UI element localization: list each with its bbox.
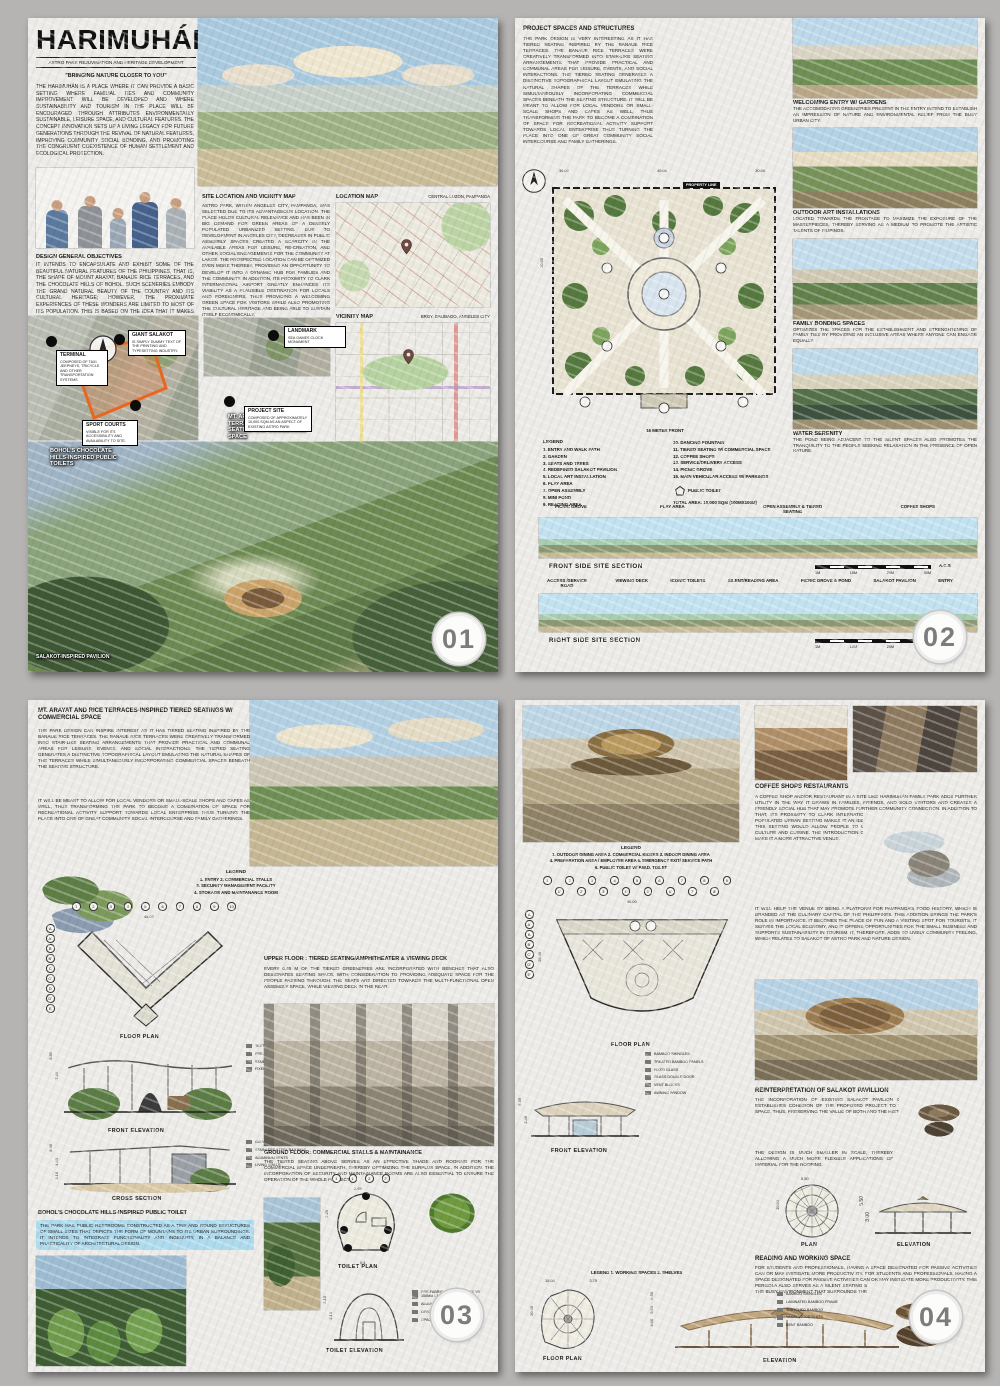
vicinity-map-value: BRGY. BALIBAGO, ANGELES CITY bbox=[421, 314, 490, 320]
dimension-label: 30.00 bbox=[755, 168, 765, 173]
dimension-label: 2.45 bbox=[523, 1116, 528, 1124]
legend-title: LEGEND bbox=[523, 846, 739, 851]
toilet-heading: BOHOL'S CHOCOLATE HILLS-INSPIRED PUBLIC … bbox=[38, 1210, 187, 1216]
grid-bubble: 1 bbox=[543, 876, 552, 885]
scale-bar bbox=[815, 565, 931, 569]
dimension-label: 5.50 bbox=[859, 1196, 865, 1206]
tiered-seating-render-image bbox=[250, 700, 498, 866]
dimension-label: 6.50 bbox=[649, 1292, 654, 1300]
pathway-photo bbox=[264, 1198, 320, 1310]
dimension-label: 8.90 bbox=[48, 1052, 53, 1060]
legend-item: 15. MAIN VEHICULAR ACCESS W/ PARKINGS bbox=[673, 474, 793, 481]
scale-labels: 1M10M20M30M bbox=[815, 571, 931, 575]
grid-bubble: C' bbox=[46, 974, 55, 983]
toilet-paragraph: THE PARK HAS PUBLIC RESTROOMS CONSTRUCTE… bbox=[36, 1220, 254, 1250]
site-heading: SITE LOCATION AND VICINITY MAP bbox=[202, 194, 296, 200]
grid-bubble: 2' bbox=[382, 1174, 391, 1183]
floor-plan-label: FLOOR PLAN bbox=[120, 1034, 159, 1040]
legend-item: 14. PICNIC GROVE bbox=[673, 467, 793, 474]
grid-bubble: 8 bbox=[193, 902, 202, 911]
material-callout: BAMBOO SHINGLES bbox=[777, 1292, 861, 1296]
grid-bubble: 2 bbox=[565, 876, 574, 885]
dimension-label: 30.00 bbox=[559, 168, 569, 173]
location-map-header: LOCATION MAP CENTRAL LUZON, PAMPANGA bbox=[336, 194, 490, 200]
cross-section-label: CROSS SECTION bbox=[112, 1196, 162, 1202]
salakot-plan-drawing bbox=[783, 1182, 841, 1240]
board-number-badge: 04 bbox=[913, 1294, 959, 1340]
legend-title: LEGEND bbox=[146, 870, 326, 875]
legend-item: 6. PLAY AREA bbox=[543, 481, 671, 488]
toilet-plan-label: TOILET PLAN bbox=[338, 1264, 378, 1270]
colonnade-render-image bbox=[264, 1004, 494, 1146]
front-elevation-drawing bbox=[60, 1048, 240, 1124]
plan-grid-numbers-2: 1'2'3'4'5'6'7'8' bbox=[555, 887, 719, 896]
legend-item: 1. ENTRY AND WALK PATH bbox=[543, 447, 671, 454]
toilet-model-image bbox=[412, 1178, 492, 1242]
plan-grid-letters: AA'BB'CC'DD'E bbox=[46, 924, 55, 1013]
legend-lines: 1. ENTRY 2. COMMERCIAL STALLS3. SECURITY… bbox=[146, 877, 326, 896]
dimension-label: 4.45 bbox=[54, 1158, 59, 1166]
legend-item: 5. LOCAL ART INSTALLATION bbox=[543, 474, 671, 481]
dimension-label: 25.00 bbox=[537, 952, 542, 962]
material-callout: BAMBOO SHINGLES bbox=[645, 1052, 717, 1056]
salakot-roof-model-image bbox=[899, 1092, 979, 1152]
captioned-render: WATER SERENITY THE POND BEING ADJACENT T… bbox=[793, 349, 977, 454]
grid-bubble: 6 bbox=[655, 876, 664, 885]
floor-plan-label: FLOOR PLAN bbox=[611, 1042, 650, 1048]
board-number-badge: 03 bbox=[434, 1292, 480, 1338]
dimension-label: 2.25 bbox=[324, 1210, 329, 1218]
grid-bubble: 4' bbox=[622, 887, 631, 896]
section-zone-label: SILENT/READING AREA bbox=[728, 578, 779, 588]
dimension-label: 45.00 bbox=[144, 914, 154, 919]
grid-bubble: 5 bbox=[141, 902, 150, 911]
legend-column-2: 10. DANCING FOUNTAIN11. TIERED SEATING W… bbox=[673, 440, 793, 481]
front-section-caption: FRONT SIDE SITE SECTION bbox=[549, 563, 643, 570]
map-pin-icon bbox=[402, 349, 415, 365]
scale-bar bbox=[815, 639, 931, 643]
scale-tick-label: 1M bbox=[815, 645, 820, 649]
grid-bubble: 2 bbox=[365, 1174, 374, 1183]
grid-bubble: 1 bbox=[332, 1174, 341, 1183]
landmark-callout: LANDMARK SEA GAMES CLOCK MONUMENT bbox=[284, 326, 346, 348]
map-pin-icon bbox=[400, 239, 413, 255]
grid-bubble: A bbox=[525, 910, 534, 919]
grid-bubble: 2 bbox=[89, 902, 98, 911]
project-tagline: "BRINGING NATURE CLOSER TO YOU" bbox=[36, 73, 196, 79]
legend-item: 11. TIERED SEATING W/ COMMERCIAL SPACE bbox=[673, 447, 793, 454]
site-paragraph: ASTRO PARK, WITHIN ANGELES CITY, PAMPANG… bbox=[202, 203, 330, 318]
section-zone-label: ACCESS /SERVICE ROAD bbox=[541, 578, 593, 588]
vicinity-map bbox=[336, 323, 490, 441]
material-callout: TREATED BAMBOO PANELS bbox=[645, 1060, 717, 1064]
callout-text: IS SIMPLY DUMMY TEXT OF THE PRINTING AND… bbox=[132, 340, 182, 354]
vicinity-map-header: VICINITY MAP BRGY. BALIBAGO, ANGELES CIT… bbox=[336, 314, 490, 320]
render-caption-column: WELCOMING ENTRY W/ GARDENS THE ACCOMODAT… bbox=[793, 18, 977, 459]
salakot-building-model-image bbox=[863, 812, 977, 898]
dimension-label: 10.00 bbox=[545, 1278, 555, 1283]
dimension-label: 5.55 bbox=[517, 1098, 522, 1106]
section-zone-label: PLAY AREA bbox=[660, 504, 685, 514]
bottom-floor-plan-drawing bbox=[537, 1286, 599, 1352]
legend-item: 4. REDEFINED SALAKOT PAVILION bbox=[543, 467, 671, 474]
property-line-tag: PROPERTY LINE bbox=[683, 182, 720, 188]
material-callout: LAMINATED BAMBOO FRAME bbox=[777, 1300, 861, 1304]
project-subtitle: ASTRO PARK REJUVINATION AND HERITAGE DEV… bbox=[36, 57, 196, 68]
plaza-render-image bbox=[198, 18, 498, 186]
pavilion-overlay-label: SALAKOT-INSPIRED PAVILION bbox=[36, 654, 166, 660]
grid-bubble: C' bbox=[525, 950, 534, 959]
material-callout: VENT BLOCKS bbox=[645, 1083, 717, 1087]
tiered-seating-heading: MT. ARAYAT AND RICE TERRACES-INSPIRED TI… bbox=[38, 708, 250, 722]
render-caption-text: THE ACCOMODATING GREENERIES PRESENT IN T… bbox=[793, 106, 977, 123]
render-caption-text: LOCATED TOWARDS THE FRONTAGE TO MAXIMIZE… bbox=[793, 216, 977, 233]
callout-dot bbox=[268, 330, 279, 341]
dimension-label: 7.40 bbox=[54, 1072, 59, 1080]
grid-bubble: 1' bbox=[555, 887, 564, 896]
grid-bubble: 6' bbox=[666, 887, 675, 896]
grid-bubble: 1' bbox=[349, 1174, 358, 1183]
bottom-floor-plan-label: FLOOR PLAN bbox=[543, 1356, 582, 1362]
salakot-heading: REINTERPRETATION OF SALAKOT PAVILLION bbox=[755, 1088, 889, 1095]
grid-bubble: 8 bbox=[700, 876, 709, 885]
callout-title: GIANT SALAKOT bbox=[132, 333, 182, 339]
bottom-elevation-label: ELEVATION bbox=[763, 1358, 797, 1364]
material-callout: AWNING WINDOW bbox=[645, 1091, 717, 1095]
toilets-overlay-label: BOHOL'S CHOCOLATE HILLS-INSPIRED PUBLIC … bbox=[50, 448, 124, 468]
grid-bubble: 4 bbox=[610, 876, 619, 885]
legend-item: 4. STORAGE AND MAINTANANCE ROOM bbox=[146, 890, 326, 896]
giant-salakot-callout: GIANT SALAKOT IS SIMPLY DUMMY TEXT OF TH… bbox=[128, 330, 186, 356]
grid-bubble: A' bbox=[46, 934, 55, 943]
salakot-elevation-label: ELEVATION bbox=[897, 1242, 931, 1248]
dimension-label: 20.00 bbox=[529, 1306, 534, 1316]
title-block: HARIMUHÁN ASTRO PARK REJUVINATION AND HE… bbox=[36, 24, 196, 79]
dimension-label: 40.00 bbox=[627, 899, 637, 904]
front-elevation-label: FRONT ELEVATION bbox=[108, 1128, 164, 1134]
upper-floor-heading: UPPER FLOOR : TIERED SEATING/AMPHITHEATE… bbox=[264, 956, 494, 962]
board-01: HARIMUHÁN ASTRO PARK REJUVINATION AND HE… bbox=[28, 18, 498, 672]
right-section-caption: RIGHT SIDE SITE SECTION bbox=[549, 637, 641, 644]
grid-bubble: 5 bbox=[633, 876, 642, 885]
grid-bubble: B' bbox=[46, 954, 55, 963]
legend-item: 3. SEATS AND TREES bbox=[543, 461, 671, 468]
legend-item: 10. DANCING FOUNTAIN bbox=[673, 440, 793, 447]
grid-bubble: B bbox=[525, 930, 534, 939]
grid-bubble: 7' bbox=[688, 887, 697, 896]
park-render-image bbox=[793, 128, 977, 208]
toilet-plan-drawing bbox=[330, 1188, 402, 1260]
scale-suffix: A.C.S bbox=[939, 563, 951, 568]
frontage-label: 16 METER FRONT bbox=[605, 428, 725, 433]
scale-tick-label: 10M bbox=[850, 571, 857, 575]
scale-tick-label: 10M bbox=[850, 645, 857, 649]
bottom-legend: LEGEND 1. WORKING SPACES 2. SHELVES bbox=[591, 1270, 682, 1275]
scale-labels: 1M10M20M30M bbox=[815, 645, 931, 649]
salakot-plan-label: PLAN bbox=[801, 1242, 817, 1248]
upper-floor-paragraph: EVERY 0.45 M OF THE TIERED GREENERIES AR… bbox=[264, 966, 494, 990]
legend-item: 4. PREPARATION AREA / EMPLOYEE AREA 5. E… bbox=[523, 858, 739, 864]
board-number-badge: 01 bbox=[436, 616, 482, 662]
captioned-render: FAMILY BONDING SPACES OPTIMIZES THE SPAC… bbox=[793, 239, 977, 344]
callout-text: COMPOSED OF TAXI, JEEPNEYS, TRICYCLE AND… bbox=[60, 360, 104, 383]
grid-bubble: E' bbox=[525, 970, 534, 979]
dimension-label: 5.50 bbox=[801, 1176, 809, 1181]
grid-bubble: B' bbox=[525, 940, 534, 949]
dimension-label: 5.00 bbox=[649, 1306, 654, 1314]
coffee-heading: COFFEE SHOPS RESTAURANTS bbox=[755, 784, 849, 791]
legend-item: 8. MINI POND bbox=[543, 495, 671, 502]
dimension-label: 8.90 bbox=[48, 1144, 53, 1152]
cafe-interior-photo-1 bbox=[755, 706, 847, 780]
siteplan-top-dims: 30.0040.0030.00 bbox=[559, 168, 765, 173]
scale-tick-label: 20M bbox=[887, 645, 894, 649]
spaces-paragraph: THE PARK DESIGN IS VERY INTERESTING AS I… bbox=[523, 36, 653, 145]
toilet-grid-numbers: 11'22' bbox=[332, 1174, 390, 1183]
section-zone-label: COFFEE SHOPS bbox=[901, 504, 935, 514]
dimension-label: 20.00 bbox=[539, 258, 544, 268]
project-title: HARIMUHÁN bbox=[36, 24, 196, 56]
objectives-heading: DESIGN GENERAL OBJECTIVES bbox=[36, 254, 122, 260]
section-zone-label: SALAKOT PAVILION bbox=[873, 578, 916, 588]
front-elevation-label: FRONT ELEVATION bbox=[551, 1148, 607, 1154]
section-zone-label: ICONIC TOILETS bbox=[670, 578, 705, 588]
grid-bubble: 3 bbox=[107, 902, 116, 911]
location-map-label: LOCATION MAP bbox=[336, 194, 378, 200]
dimension-label: 3.10 bbox=[322, 1296, 327, 1304]
grid-bubble: 10 bbox=[227, 902, 236, 911]
grid-bubble: D bbox=[46, 984, 55, 993]
terminal-callout: TERMINAL COMPOSED OF TAXI, JEEPNEYS, TRI… bbox=[56, 350, 108, 386]
section-zone-label: ENTRY bbox=[938, 578, 953, 588]
dimension-label: 40.00 bbox=[657, 168, 667, 173]
scale-tick-label: 1M bbox=[815, 571, 820, 575]
material-callout: THATCHED BAMBOO bbox=[777, 1308, 861, 1312]
salakot-elevation-drawing bbox=[871, 1192, 975, 1240]
intro-paragraph: THE HARIMUHÁN IS A PLACE WHERE IT CAN PR… bbox=[36, 84, 194, 158]
grid-bubble: D' bbox=[46, 994, 55, 1003]
callout-title: SPORT COURTS bbox=[86, 423, 134, 429]
front-section-labels: PICNIC GROVEPLAY AREAOPEN ASSEMBLY & TIE… bbox=[555, 504, 935, 514]
cross-section-drawing bbox=[60, 1138, 240, 1194]
board-number-badge: 02 bbox=[917, 614, 963, 660]
callout-title: PROJECT SITE bbox=[248, 409, 308, 415]
dimension-label: 10.00 bbox=[775, 1200, 780, 1210]
grid-bubble: A' bbox=[525, 920, 534, 929]
legend-lines: 1. OUTDOOR DINING AREA 2. COMMERCIAL KIO… bbox=[523, 852, 739, 871]
grid-bubble: 7 bbox=[176, 902, 185, 911]
family-photo bbox=[36, 168, 194, 248]
toilet-elevation-label: TOILET ELEVATION bbox=[326, 1348, 383, 1354]
legend-column-1: 1. ENTRY AND WALK PATH2. GARDEN3. SEATS … bbox=[543, 447, 671, 508]
grid-bubble: 6 bbox=[158, 902, 167, 911]
grid-bubble: 9 bbox=[210, 902, 219, 911]
north-arrow-icon bbox=[521, 168, 547, 194]
grid-bubble: 5' bbox=[644, 887, 653, 896]
section-zone-label: OPEN ASSEMBLY & TIERED SEATING bbox=[758, 504, 828, 514]
park-render-image bbox=[793, 18, 977, 98]
material-callout: FIXED GLASS bbox=[645, 1068, 717, 1072]
callout-dot bbox=[46, 336, 57, 347]
sport-courts-callout: SPORT COURTS VISIBLE FOR ITS ACCESSIBILI… bbox=[82, 420, 138, 446]
grid-bubble: A bbox=[46, 924, 55, 933]
grid-bubble: C bbox=[46, 964, 55, 973]
floor-plan-drawing bbox=[64, 920, 236, 1028]
grid-bubble: 3 bbox=[588, 876, 597, 885]
bottom-elev-dims: 6.505.003.00 bbox=[649, 1292, 654, 1327]
material-callout: BENT BAMBOO bbox=[777, 1323, 861, 1327]
floor-plan-drawing bbox=[543, 906, 741, 1038]
render-caption-text: THE POND BEING ADJACENT TO THE SILENT SP… bbox=[793, 437, 977, 454]
legend-item: 13. SERVICE/DELIVERY ACCESS bbox=[673, 460, 793, 467]
grid-bubble: 1 bbox=[72, 902, 81, 911]
pavilion-playground-photo bbox=[755, 980, 977, 1080]
tiered-seating-para2: IT WILL BE MEANT TO ALLOW FOR LOCAL VEND… bbox=[38, 798, 250, 822]
board-04: LEGEND 1. OUTDOOR DINING AREA 2. COMMERC… bbox=[515, 700, 985, 1372]
section-zone-label: PICNIC GROVE & POND bbox=[801, 578, 851, 588]
front-elevation-drawing bbox=[529, 1092, 641, 1144]
grid-bubble: B bbox=[46, 944, 55, 953]
site-plan-drawing bbox=[545, 176, 783, 424]
grid-bubble: 2' bbox=[577, 887, 586, 896]
captioned-render: WELCOMING ENTRY W/ GARDENS THE ACCOMODAT… bbox=[793, 18, 977, 123]
legend-item: 7. OPEN ASSEMBLY bbox=[543, 488, 671, 495]
spaces-heading: PROJECT SPACES AND STRUCTURES bbox=[523, 26, 653, 33]
cafe-interior-photo-2 bbox=[853, 706, 977, 772]
callout-title: LANDMARK bbox=[288, 329, 342, 335]
park-render-image bbox=[793, 239, 977, 319]
grid-bubble: 8' bbox=[710, 887, 719, 896]
grid-bubble: D' bbox=[525, 960, 534, 969]
right-section-drawing bbox=[539, 594, 977, 632]
captioned-render: OUTDOOR ART INSTALLATIONS LOCATED TOWARD… bbox=[793, 128, 977, 233]
salakot-para2: THE DESIGN IS MUCH SMALLER IN SCALE, THE… bbox=[755, 1150, 893, 1168]
plan-grid-numbers: 12345678910 bbox=[72, 902, 236, 911]
vicinity-map-label: VICINITY MAP bbox=[336, 314, 373, 320]
material-callout: GLASS DOUBLE DOOR bbox=[645, 1075, 717, 1079]
callout-text: VISIBLE FOR ITS ACCESSIBILITY AND AVAILA… bbox=[86, 430, 134, 444]
section-zone-label: PICNIC GROVE bbox=[555, 504, 587, 514]
reading-heading: READING AND WORKING SPACE bbox=[755, 1256, 850, 1263]
presentation-sheet: { "panel1": { "badge": "01", "title": "H… bbox=[0, 0, 1000, 1386]
front-section-drawing bbox=[539, 518, 977, 558]
grid-bubble: 3' bbox=[599, 887, 608, 896]
callout-dot bbox=[130, 400, 141, 411]
board-03: MT. ARAYAT AND RICE TERRACES-INSPIRED TI… bbox=[28, 700, 498, 1372]
dimension-label: 3.10 bbox=[54, 1172, 59, 1180]
toilet-elevation-drawing bbox=[332, 1288, 406, 1344]
legend-item: 12. COFFEE SHOPS bbox=[673, 454, 793, 461]
coffee-para2: IT WILL HELP THE VENUE BY BEING A PLATFO… bbox=[755, 906, 977, 942]
bottom-plan-dims: 10.003.75 bbox=[545, 1278, 597, 1283]
grid-bubble: 7 bbox=[678, 876, 687, 885]
grid-bubble: 4 bbox=[124, 902, 133, 911]
callout-dot bbox=[224, 396, 235, 407]
plan-grid-numbers-1: 123456789 bbox=[543, 876, 731, 885]
toilet-hills-photo bbox=[36, 1256, 186, 1366]
right-section-labels: ACCESS /SERVICE ROADVIEWING DECKICONIC T… bbox=[541, 578, 953, 588]
scale-tick-label: 30M bbox=[924, 571, 931, 575]
location-map-value: CENTRAL LUZON, PAMPANGA bbox=[428, 194, 490, 200]
ground-floor-heading: GROUND FLOOR: COMMERCIAL STALLS & MAINTA… bbox=[264, 1150, 494, 1156]
grid-bubble: E bbox=[46, 1004, 55, 1013]
callout-text: COMPOSED OF APPROXIMATELY 10,000 SQM AS … bbox=[248, 416, 308, 430]
legend-item: 6. PUBLIC TOILET W/ P.W.D. TOILET bbox=[523, 865, 739, 871]
render-caption-text: OPTIMIZES THE SPACES FOR THE ESTABLISHME… bbox=[793, 327, 977, 344]
material-callout: YAKAL WOOD SLATS bbox=[777, 1315, 861, 1319]
legend-item: 2. GARDEN bbox=[543, 454, 671, 461]
callout-text: SEA GAMES CLOCK MONUMENT bbox=[288, 336, 342, 345]
board-02: PROJECT SPACES AND STRUCTURES THE PARK D… bbox=[515, 18, 985, 672]
location-map bbox=[336, 203, 490, 307]
dimension-label: 3.75 bbox=[589, 1278, 597, 1283]
pergola-callouts: BAMBOO SHINGLESLAMINATED BAMBOO FRAMETHA… bbox=[777, 1292, 861, 1331]
scale-tick-label: 20M bbox=[887, 571, 894, 575]
project-site-callout: PROJECT SITE COMPOSED OF APPROXIMATELY 1… bbox=[244, 406, 312, 432]
callout-title: TERMINAL bbox=[60, 353, 104, 359]
section-zone-label: VIEWING DECK bbox=[615, 578, 648, 588]
restaurant-walkway-photo bbox=[523, 706, 739, 842]
park-render-image bbox=[793, 349, 977, 429]
masterplan-render-image bbox=[28, 442, 498, 672]
grid-bubble: 9 bbox=[723, 876, 732, 885]
callout-dot bbox=[114, 334, 125, 345]
legend-toilet-label: PUBLIC TOILET bbox=[688, 488, 721, 493]
plan-grid-letters: AA'BB'C'D'E' bbox=[525, 910, 534, 979]
tiered-seating-para1: THE PARK DESIGN CAN INSPIRE INTEREST AS … bbox=[38, 728, 250, 770]
public-toilet-icon bbox=[675, 486, 685, 496]
legend-title: LEGEND bbox=[543, 440, 563, 445]
dimension-label: 3.00 bbox=[649, 1319, 654, 1327]
elevation-callouts: BAMBOO SHINGLESTREATED BAMBOO PANELSFIXE… bbox=[645, 1052, 717, 1099]
